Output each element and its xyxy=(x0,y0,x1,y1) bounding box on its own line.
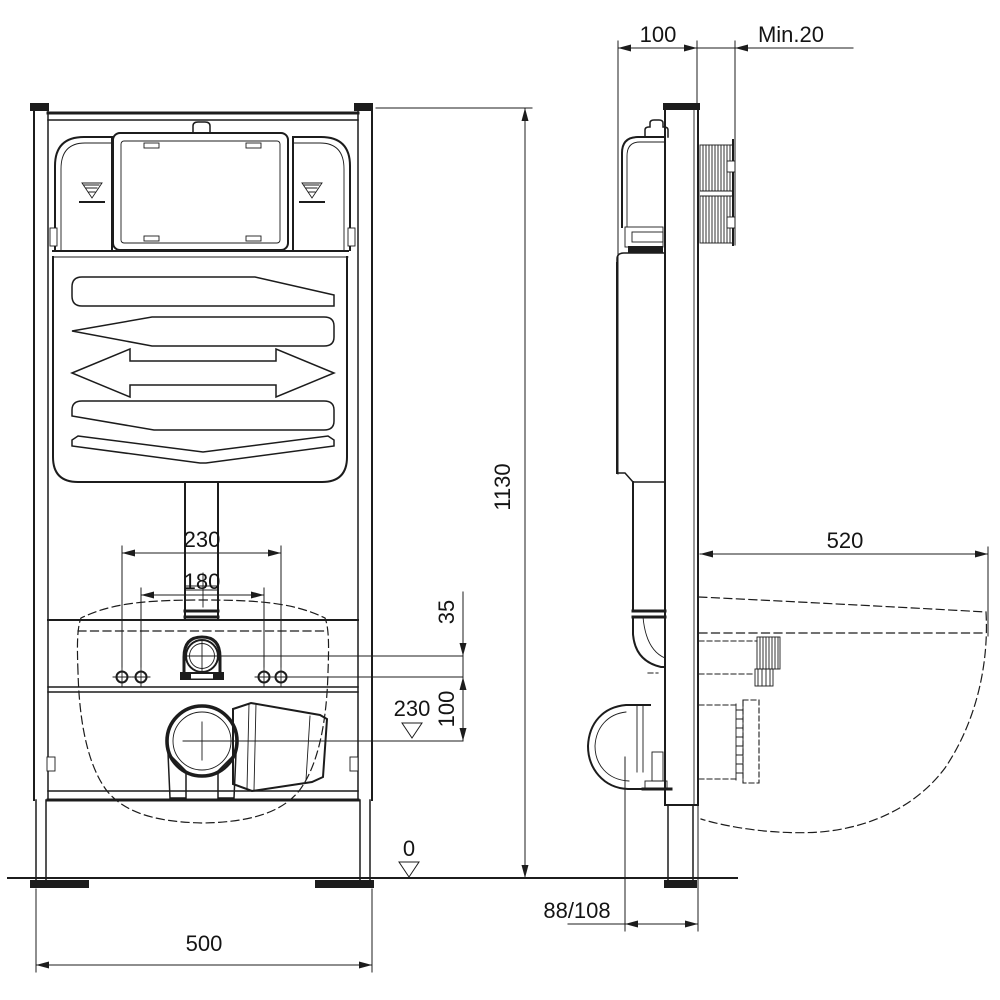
flush-pipe-side xyxy=(633,482,665,673)
dim-bolt-spacing-outer: 230 xyxy=(122,527,281,667)
fixing-bolt xyxy=(132,668,150,686)
pipe-coupling-sleeve xyxy=(743,700,759,783)
panel-clip xyxy=(246,236,261,241)
technical-drawing-page: 100 Min.20 1130 230 xyxy=(0,0,1000,1000)
dim-frame-width: 500 xyxy=(36,889,372,972)
dim-bowl-projection-label: 520 xyxy=(827,528,864,553)
rail-top-cap-left xyxy=(30,103,49,111)
rail-clip-right xyxy=(350,757,358,771)
level-triangle-icon xyxy=(399,862,419,877)
outlet-pipe-hidden xyxy=(699,700,759,783)
level-triangle-icon xyxy=(402,723,422,738)
panel-clip xyxy=(246,143,261,148)
panel-top-tab xyxy=(193,122,210,133)
cistern-side xyxy=(617,120,668,482)
dim-bolt-spacing-outer-label: 230 xyxy=(184,527,221,552)
access-panel xyxy=(113,122,288,250)
dimensions: 100 Min.20 1130 230 xyxy=(36,22,988,972)
fixing-bolts xyxy=(113,668,463,686)
dim-bolts-above-drain-label: 100 xyxy=(434,691,459,728)
dim-bowl-projection: 520 xyxy=(700,528,988,636)
dim-drain-wall-offset-label: 88/108 xyxy=(543,898,610,923)
dim-min-wall-thickness: Min.20 xyxy=(735,22,824,245)
fixing-bolt xyxy=(255,668,273,686)
profile-top-cap xyxy=(663,103,700,110)
cross-bars xyxy=(48,113,358,800)
wc-bowl-outline-front xyxy=(77,600,328,823)
dim-inlet-offsets: 35 100 xyxy=(434,592,467,741)
water-inlet-bend xyxy=(180,637,463,680)
elbow-support-bracket xyxy=(652,752,663,781)
flush-plate-wall-box xyxy=(700,140,735,245)
wing-clip-right xyxy=(348,228,355,246)
panel-clip xyxy=(144,143,159,148)
dim-min-wall-thickness-label: Min.20 xyxy=(758,22,824,47)
fixing-rod-hidden xyxy=(699,637,780,686)
level-drain-height-label: 230 xyxy=(394,696,431,721)
fixing-bolt xyxy=(272,668,290,686)
wc-bowl-outline-side xyxy=(699,597,986,833)
dim-drain-wall-offset: 88/108 xyxy=(543,757,698,931)
dim-frame-depth-label: 100 xyxy=(640,22,677,47)
dim-frame-height-label: 1130 xyxy=(490,463,515,510)
cistern-seal xyxy=(628,246,663,253)
tank-arrow-rib xyxy=(72,349,334,397)
level-floor-label: 0 xyxy=(403,836,415,861)
dim-bolt-spacing-inner-label: 180 xyxy=(184,569,221,594)
pipe-thread-ring xyxy=(736,704,743,780)
wall-box-clip xyxy=(727,161,735,172)
rail-clip-left xyxy=(47,757,55,771)
foot-plate-right xyxy=(315,880,374,888)
level-marker-drain-height: 230 xyxy=(394,696,431,738)
panel-clip xyxy=(144,236,159,241)
water-level-icon-left xyxy=(80,183,104,202)
profile-foot xyxy=(664,880,697,888)
foot-plate-left xyxy=(30,880,89,888)
dim-frame-height: 1130 xyxy=(376,108,532,878)
wall-box-clip xyxy=(727,217,735,228)
cistern-tank xyxy=(53,251,348,482)
cistern-side-wings xyxy=(50,137,355,250)
fixing-bolt xyxy=(113,668,131,686)
water-level-icon-right xyxy=(300,183,324,202)
installation-drawing: 100 Min.20 1130 230 xyxy=(0,0,1000,1000)
level-marker-floor: 0 xyxy=(399,836,419,877)
legs-and-feet xyxy=(30,800,374,888)
wing-clip-left xyxy=(50,228,57,246)
frame-profile-side xyxy=(663,103,700,888)
dim-frame-width-label: 500 xyxy=(186,931,223,956)
tank-rib-pattern xyxy=(72,277,334,463)
drain-elbow-side xyxy=(588,705,671,789)
dim-inlet-above-bolts-label: 35 xyxy=(434,600,459,624)
front-view xyxy=(30,103,463,888)
side-view xyxy=(588,103,986,888)
rail-top-cap-right xyxy=(354,103,373,111)
